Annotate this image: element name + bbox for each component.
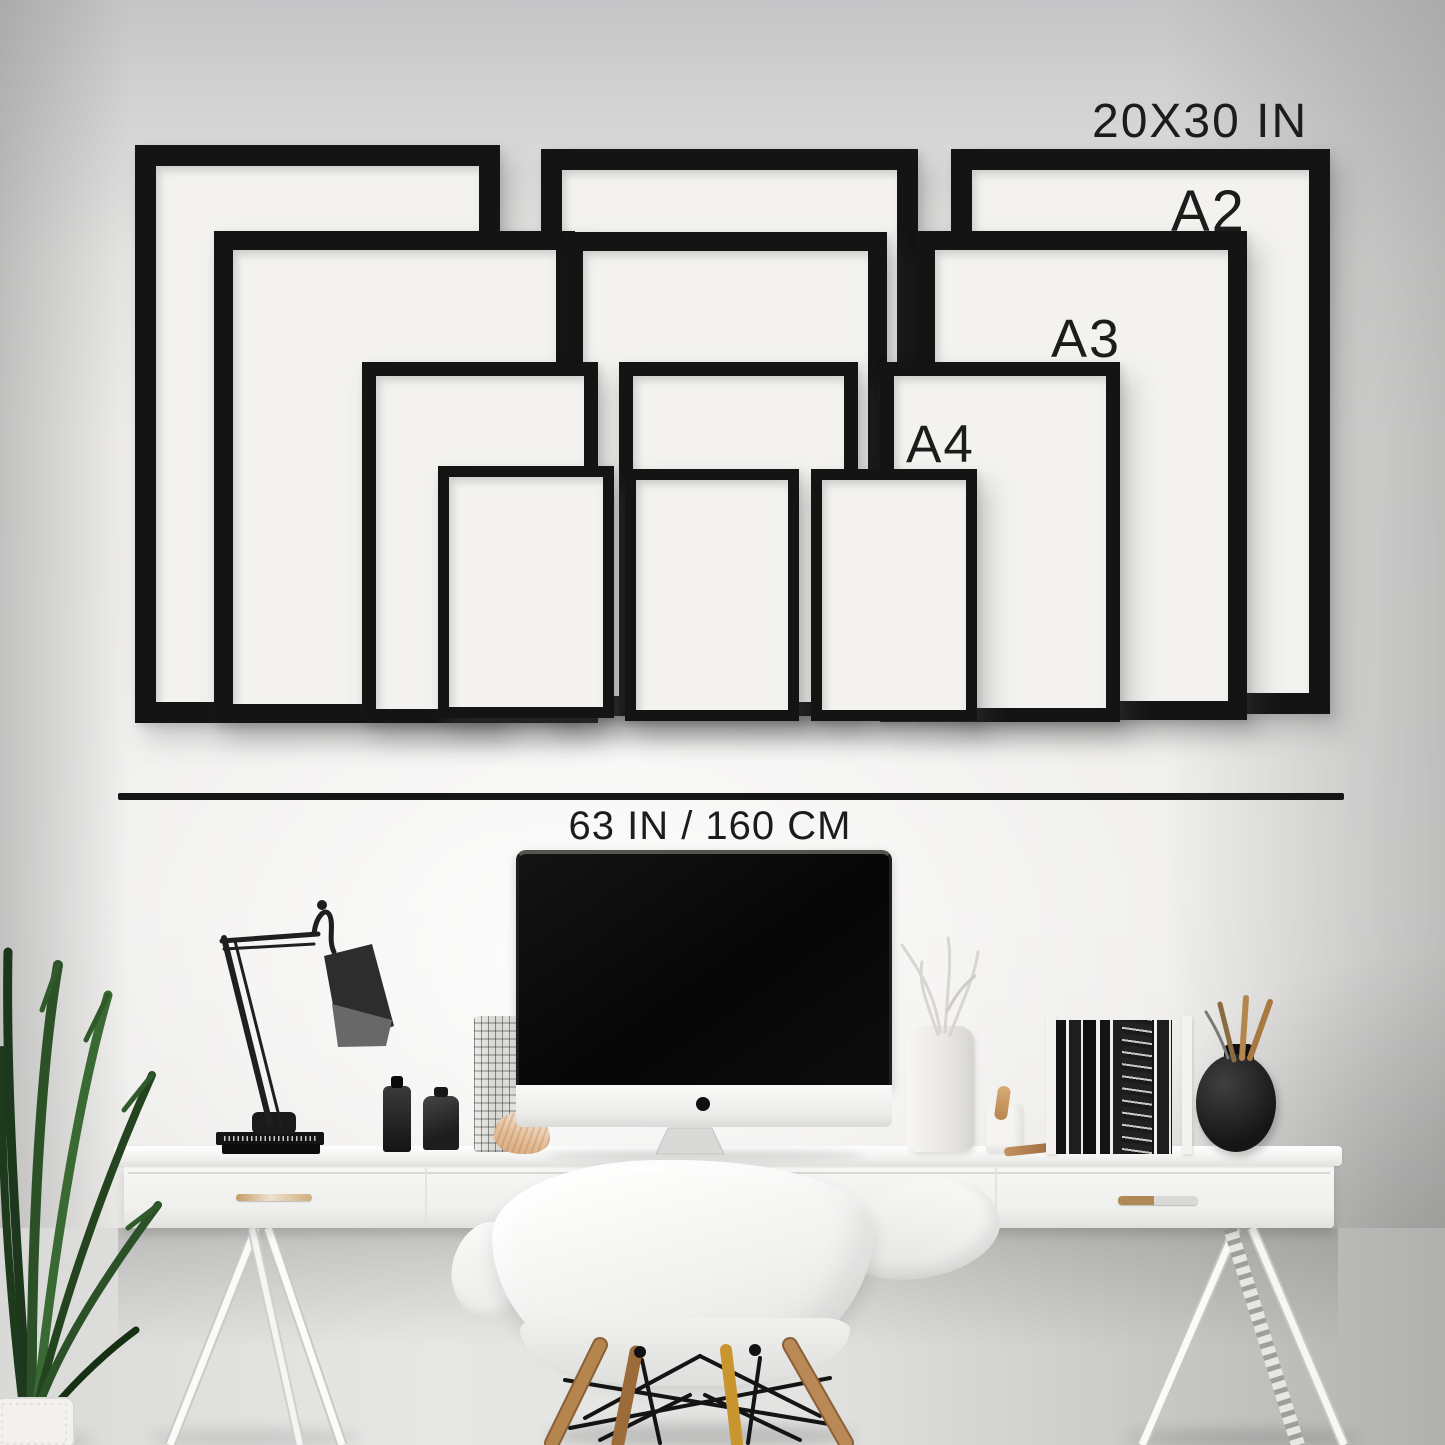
label-wall-width: 63 IN / 160 CM (480, 804, 940, 849)
frame-a4-left (438, 466, 614, 718)
left-trestle-floor-shadow (150, 1430, 360, 1445)
small-dark-vase (423, 1096, 459, 1150)
desk-lamp-base (252, 1112, 296, 1134)
label-a2: A2 (1171, 178, 1246, 245)
black-book-under-lamp-2 (222, 1144, 320, 1154)
label-20x30: 20X30 IN (1092, 94, 1308, 149)
label-a4: A4 (906, 414, 975, 475)
imac-logo-dot (696, 1097, 710, 1111)
product-mockup-image: 20X30 IN A2 A3 A4 63 IN / 160 CM (0, 0, 1445, 1445)
magazine-file-left-panel (1046, 1016, 1056, 1154)
frame-a4-right (811, 469, 977, 721)
wall-width-measure-line (118, 793, 1344, 800)
marbled-book (1122, 1020, 1152, 1154)
left-drawer-handle (236, 1194, 312, 1201)
imac-desk-shadow (545, 1150, 865, 1160)
drawer-divider-left (425, 1168, 427, 1226)
right-drawer-handle (1118, 1196, 1198, 1205)
black-books (1056, 1020, 1172, 1154)
frame-a4-middle (625, 469, 799, 721)
imac-screen (516, 850, 892, 1088)
plant-pot-floor-shadow (0, 1434, 92, 1445)
white-box-with-peg-doll (986, 1104, 1022, 1152)
white-vase (906, 1026, 974, 1152)
right-trestle-floor-shadow (1125, 1430, 1360, 1445)
black-round-vase (1196, 1054, 1276, 1152)
chair-floor-shadow (545, 1424, 855, 1445)
small-black-bottle (383, 1086, 411, 1152)
magazine-file (1046, 1016, 1192, 1154)
magazine-file-right-panel (1182, 1016, 1192, 1154)
label-a3: A3 (1051, 308, 1121, 370)
